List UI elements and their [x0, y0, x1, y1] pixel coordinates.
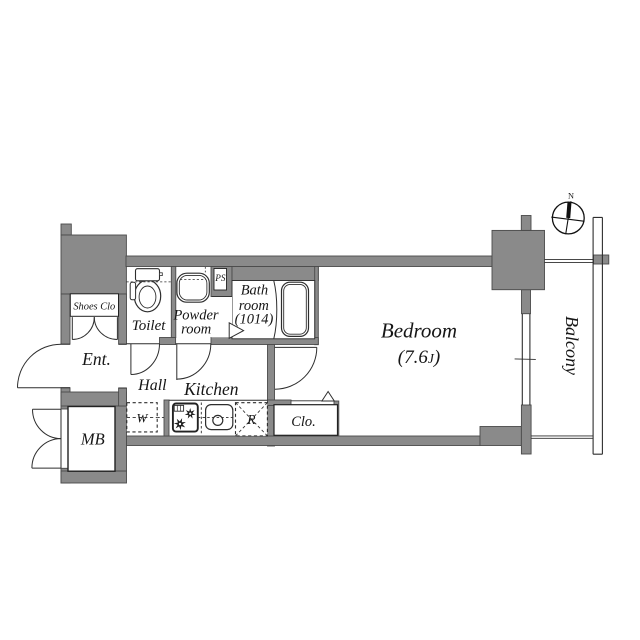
- svg-text:(1014): (1014): [235, 312, 274, 328]
- svg-text:Shoes Clo: Shoes Clo: [73, 301, 115, 312]
- svg-text:Bedroom: Bedroom: [381, 319, 457, 343]
- svg-text:Toilet: Toilet: [132, 318, 166, 334]
- svg-text:Ent.: Ent.: [81, 349, 111, 369]
- svg-text:PS: PS: [214, 273, 226, 283]
- svg-text:Bath: Bath: [241, 282, 268, 298]
- svg-text:N: N: [568, 192, 574, 201]
- svg-text:W: W: [136, 410, 148, 425]
- svg-text:Clo.: Clo.: [291, 414, 316, 430]
- svg-text:Hall: Hall: [137, 377, 167, 394]
- svg-text:Kitchen: Kitchen: [183, 379, 239, 399]
- svg-text:(7.6J): (7.6J): [398, 347, 440, 368]
- svg-text:room: room: [181, 322, 211, 338]
- svg-text:Balcony: Balcony: [562, 316, 582, 375]
- svg-text:R: R: [246, 412, 256, 427]
- svg-text:MB: MB: [80, 429, 105, 448]
